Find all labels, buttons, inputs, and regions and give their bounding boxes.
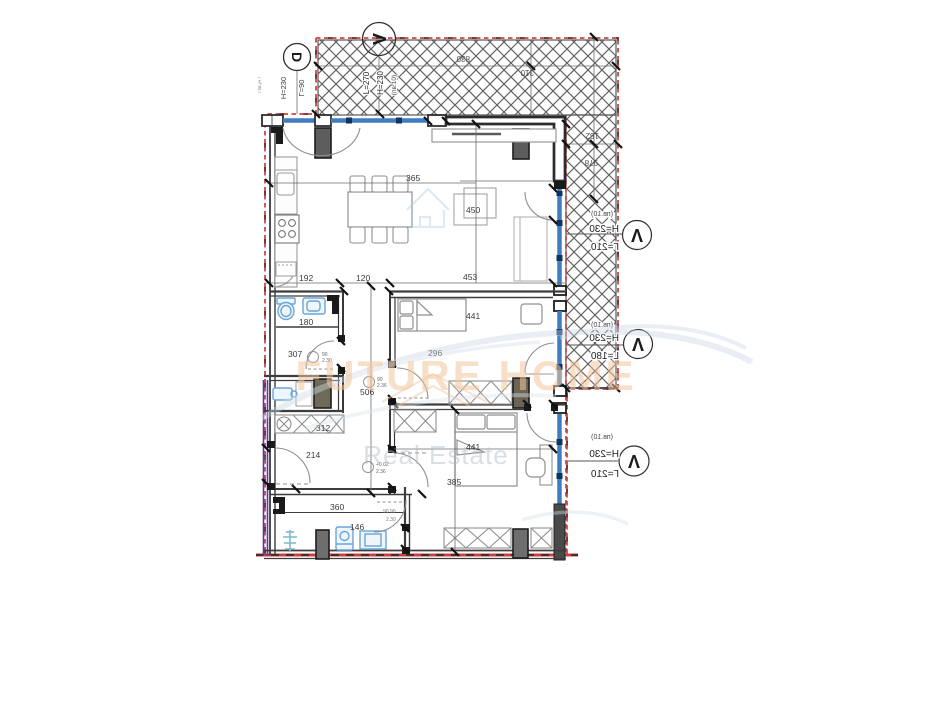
- svg-text:2.30: 2.30: [386, 517, 396, 523]
- svg-text:H=230: H=230: [589, 333, 619, 344]
- svg-text:441: 441: [466, 311, 480, 321]
- svg-text:H=230: H=230: [589, 224, 619, 235]
- svg-text:152: 152: [585, 131, 599, 140]
- svg-text:Λ: Λ: [631, 226, 643, 246]
- svg-text:90 90: 90 90: [383, 509, 396, 515]
- svg-text:830: 830: [456, 54, 470, 63]
- svg-text:(пв.10): (пв.10): [591, 211, 613, 218]
- svg-text:385: 385: [447, 477, 461, 487]
- svg-text:H=230: H=230: [589, 449, 619, 460]
- svg-text:214: 214: [306, 450, 320, 460]
- svg-text:/ пв.уч /: / пв.уч /: [257, 76, 262, 92]
- svg-text:120: 120: [356, 273, 370, 283]
- svg-text:450: 450: [466, 205, 480, 215]
- svg-text:H=230: H=230: [376, 71, 385, 95]
- svg-text:360: 360: [330, 502, 344, 512]
- svg-text:D: D: [289, 52, 305, 62]
- svg-text:310: 310: [520, 68, 534, 77]
- svg-text:Γ=210: Γ=210: [591, 242, 619, 253]
- svg-text:L=270: L=270: [362, 71, 371, 94]
- svg-text:453: 453: [463, 272, 477, 282]
- svg-text:(пв.10): (пв.10): [591, 434, 613, 441]
- svg-text:978: 978: [584, 158, 598, 167]
- svg-text:Λ: Λ: [369, 33, 389, 45]
- svg-text:Λ: Λ: [628, 452, 640, 472]
- svg-text:Γ=210: Γ=210: [591, 469, 619, 480]
- svg-text:146: 146: [350, 522, 364, 532]
- svg-text:Real Estate: Real Estate: [363, 440, 508, 470]
- svg-text:(пв.10): (пв.10): [391, 75, 398, 95]
- svg-text:365: 365: [406, 173, 420, 183]
- svg-text:Γ=90: Γ=90: [297, 80, 306, 97]
- svg-text:180: 180: [299, 317, 313, 327]
- svg-text:3 96: 3 96: [262, 455, 267, 464]
- svg-text:192: 192: [299, 273, 313, 283]
- svg-text:H=230: H=230: [279, 77, 288, 99]
